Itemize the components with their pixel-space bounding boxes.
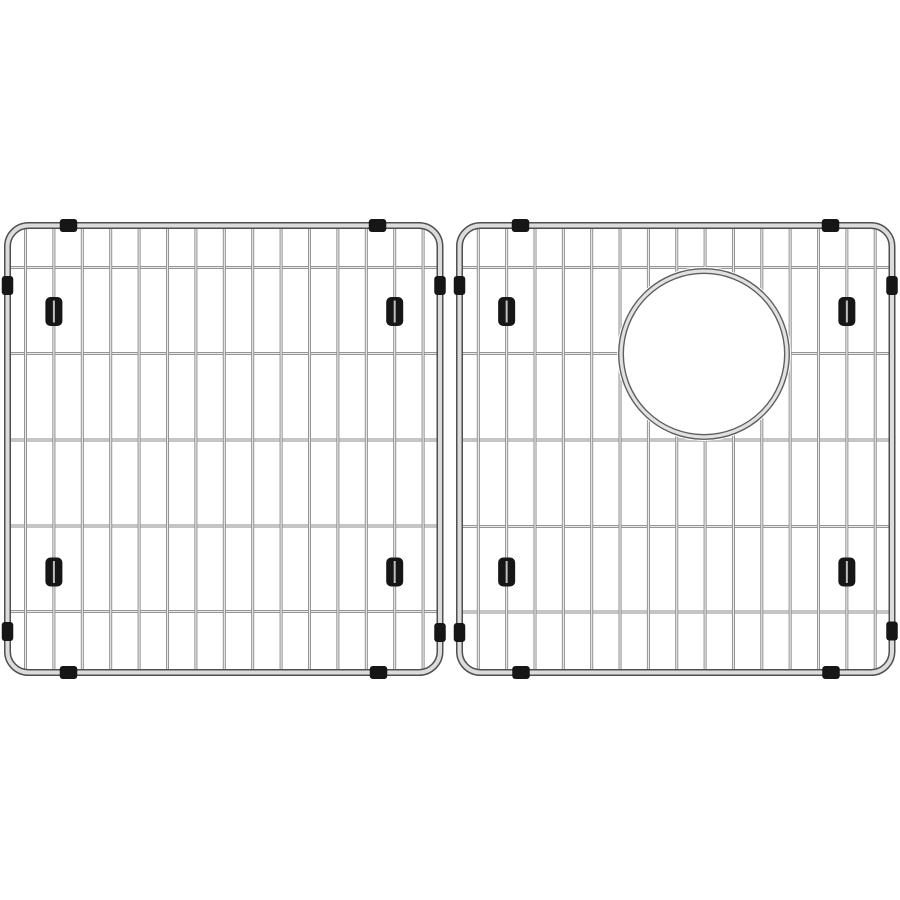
edge-bumper-bottom <box>60 666 78 679</box>
edge-bumper-top <box>512 219 530 232</box>
edge-bumper-top <box>60 219 78 232</box>
edge-bumper-left <box>454 276 466 295</box>
product-image-svg <box>0 0 900 900</box>
edge-bumper-bottom <box>370 666 388 679</box>
edge-bumper-right <box>434 276 446 295</box>
right-grid-wires <box>462 228 890 670</box>
edge-bumper-top <box>369 219 387 232</box>
product-photo <box>0 0 900 900</box>
edge-bumper-right <box>434 623 446 642</box>
edge-bumper-right <box>886 276 898 295</box>
edge-bumper-left <box>2 622 14 641</box>
edge-bumper-left <box>2 276 14 295</box>
left-grid-panel <box>2 219 446 679</box>
right-grid-panel <box>454 219 898 679</box>
edge-bumper-top <box>822 219 840 232</box>
edge-bumper-bottom <box>512 666 530 679</box>
edge-bumper-right <box>886 622 898 641</box>
edge-bumper-bottom <box>822 666 840 679</box>
left-grid-wires <box>10 228 438 670</box>
edge-bumper-left <box>454 623 466 642</box>
